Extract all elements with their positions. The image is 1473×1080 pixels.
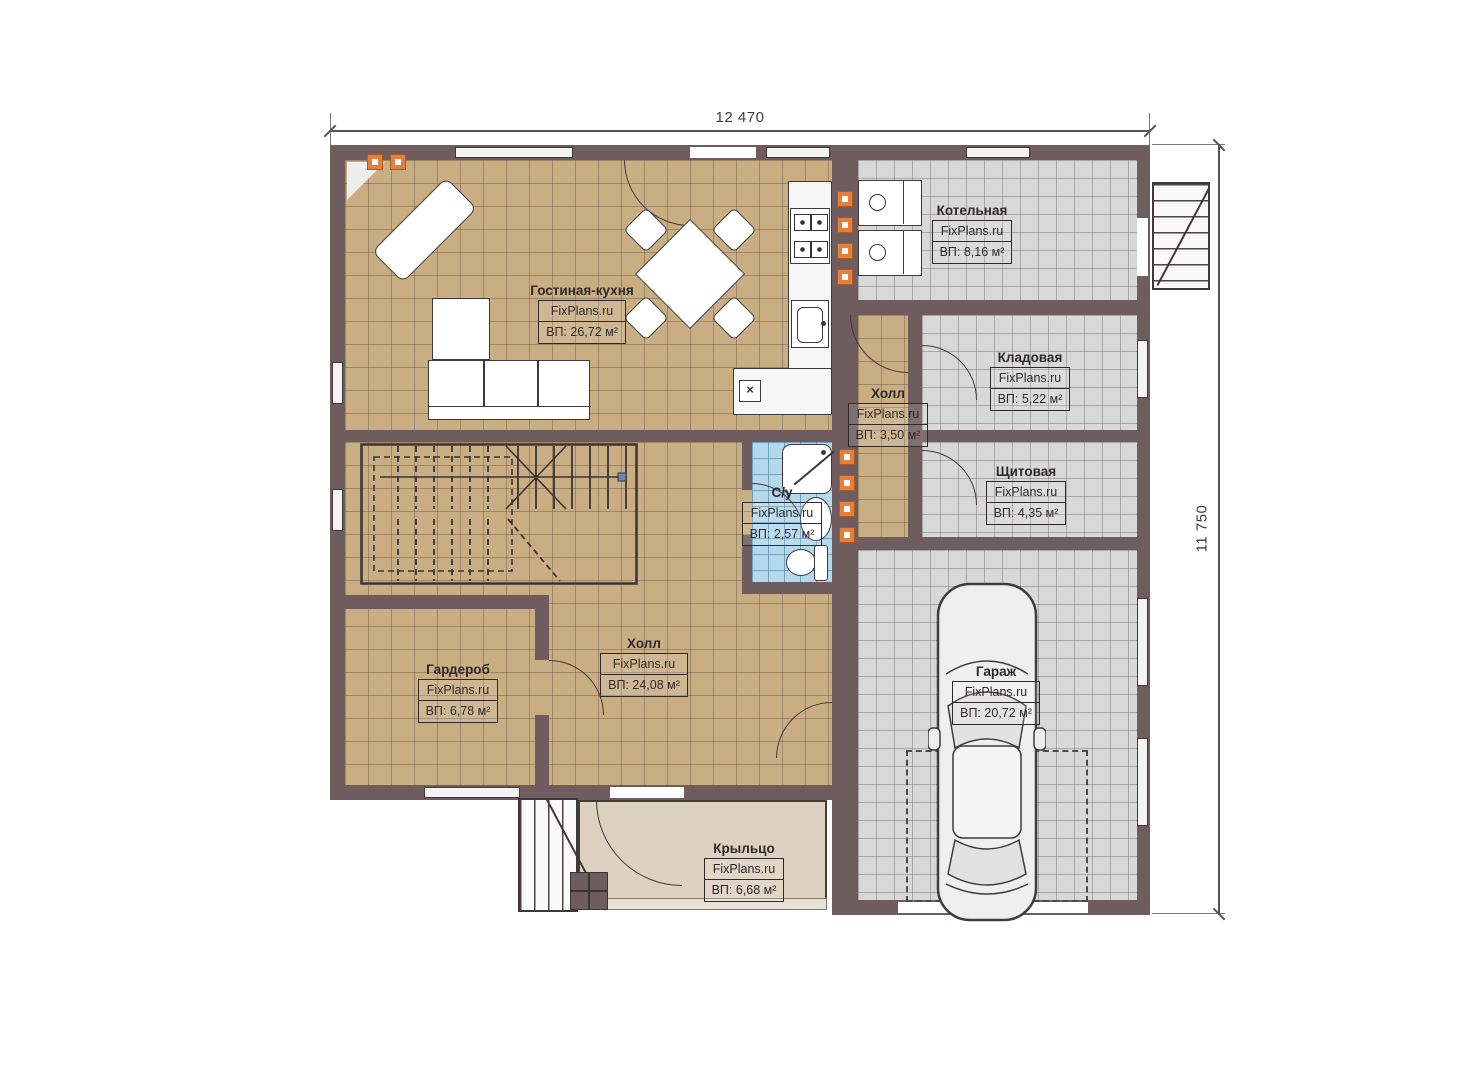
room-brand: FixPlans.ru [743, 503, 822, 523]
hob-cross-icon: × [739, 380, 761, 402]
room-name: Холл [813, 386, 963, 401]
room-area: ВП: 20,72 м² [953, 702, 1039, 723]
stove-icon [790, 208, 830, 264]
window [1137, 738, 1148, 826]
room-area: ВП: 6,78 м² [419, 700, 498, 721]
room-name: Холл [569, 636, 719, 651]
room-area: ВП: 2,57 м² [743, 523, 822, 544]
dimension-extension [1152, 144, 1225, 145]
room-brand: FixPlans.ru [953, 682, 1039, 702]
dimension-width-label: 12 470 [690, 109, 790, 126]
wall-segment [345, 430, 640, 442]
vent-marker-icon [838, 218, 852, 232]
burner-icon [794, 214, 811, 231]
dimension-line-right [1218, 145, 1220, 915]
sink-basin [797, 307, 823, 343]
sofa-back-line [429, 406, 591, 408]
vent-marker-icon [391, 155, 405, 169]
steps-break-line [1157, 188, 1210, 286]
vent-marker-icon [368, 155, 382, 169]
room-brand: FixPlans.ru [987, 482, 1066, 502]
window [332, 362, 343, 404]
room-area: ВП: 4,35 м² [987, 502, 1066, 523]
kitchen-sink-icon [791, 300, 829, 348]
room-area: ВП: 24,08 м² [601, 674, 687, 695]
room-brand: FixPlans.ru [933, 221, 1012, 241]
sofa-cushion-line [537, 361, 539, 407]
room-name: Крыльцо [669, 841, 819, 856]
wall-segment [908, 300, 1150, 315]
wall-segment [832, 300, 862, 315]
wall-segment [832, 160, 858, 310]
burner-icon [811, 241, 828, 258]
dimension-extension [1152, 913, 1225, 914]
room-name: Котельная [897, 203, 1047, 218]
room-area: ВП: 26,72 м² [539, 321, 625, 342]
burner-icon [794, 241, 811, 258]
room-label-boiler: Котельная FixPlans.ru ВП: 8,16 м² [897, 203, 1047, 264]
window [455, 147, 573, 158]
coffee-table-icon [432, 298, 490, 360]
room-label-panel: Щитовая FixPlans.ru ВП: 4,35 м² [951, 464, 1101, 525]
sofa-icon [428, 360, 590, 420]
room-name: С/у [707, 485, 857, 500]
vent-marker-icon [838, 192, 852, 206]
porch-column-icon [570, 872, 608, 910]
room-label-storage: Кладовая FixPlans.ru ВП: 5,22 м² [955, 350, 1105, 411]
room-name: Гараж [921, 664, 1071, 679]
burner-icon [811, 214, 828, 231]
window [1137, 340, 1148, 398]
room-area: ВП: 3,50 м² [849, 424, 928, 445]
wall-segment [908, 505, 922, 537]
wall-segment [742, 442, 752, 490]
wall-segment [535, 715, 549, 785]
wall-segment [832, 758, 858, 915]
floorplan-canvas: 12 470 11 750 [0, 0, 1473, 1080]
door-opening [1137, 218, 1148, 276]
dimension-height-label: 11 750 [1194, 469, 1211, 589]
room-brand: FixPlans.ru [419, 680, 498, 700]
room-brand: FixPlans.ru [849, 404, 928, 424]
window [424, 787, 520, 798]
room-label-hall-small: Холл FixPlans.ru ВП: 3,50 м² [813, 386, 963, 447]
room-label-living: Гостиная-кухня FixPlans.ru ВП: 26,72 м² [507, 283, 657, 344]
dimension-line-top [330, 130, 1150, 132]
door-opening [690, 147, 756, 158]
porch-side-steps [518, 798, 578, 912]
room-name: Гостиная-кухня [507, 283, 657, 298]
vent-marker-icon [838, 270, 852, 284]
room-area: ВП: 8,16 м² [933, 241, 1012, 262]
room-brand: FixPlans.ru [601, 654, 687, 674]
room-area: ВП: 6,68 м² [705, 879, 784, 900]
wall-segment [742, 582, 834, 594]
car-icon [928, 578, 1046, 926]
room-name: Щитовая [951, 464, 1101, 479]
wall-segment [908, 315, 922, 355]
room-label-garage: Гараж FixPlans.ru ВП: 20,72 м² [921, 664, 1071, 725]
room-brand: FixPlans.ru [539, 301, 625, 321]
entry-door-opening [610, 787, 684, 798]
boiler-dial [869, 244, 886, 261]
window [966, 147, 1030, 158]
window [766, 147, 830, 158]
side-entry-steps [1152, 182, 1210, 290]
room-name: Кладовая [955, 350, 1105, 365]
room-label-wardrobe: Гардероб FixPlans.ru ВП: 6,78 м² [383, 662, 533, 723]
wall-segment [345, 595, 549, 609]
vent-marker-icon [838, 244, 852, 258]
boiler-dial [869, 194, 886, 211]
room-brand: FixPlans.ru [991, 368, 1070, 388]
window [332, 489, 343, 531]
toilet-tank-icon [814, 545, 828, 581]
shower-head-dot [821, 450, 826, 455]
room-area: ВП: 5,22 м² [991, 388, 1070, 409]
vent-marker-icon [840, 450, 854, 464]
room-label-bathroom: С/у FixPlans.ru ВП: 2,57 м² [707, 485, 857, 546]
wall-segment [904, 537, 1150, 550]
toilet-bowl-icon [786, 549, 816, 576]
staircase-icon [360, 443, 638, 585]
room-brand: FixPlans.ru [705, 859, 784, 879]
faucet-dot [821, 321, 826, 326]
shower-diagonal [794, 450, 835, 485]
room-name: Гардероб [383, 662, 533, 677]
room-label-porch: Крыльцо FixPlans.ru ВП: 6,68 м² [669, 841, 819, 902]
room-label-hall-big: Холл FixPlans.ru ВП: 24,08 м² [569, 636, 719, 697]
window [1137, 598, 1148, 686]
sofa-cushion-line [483, 361, 485, 407]
